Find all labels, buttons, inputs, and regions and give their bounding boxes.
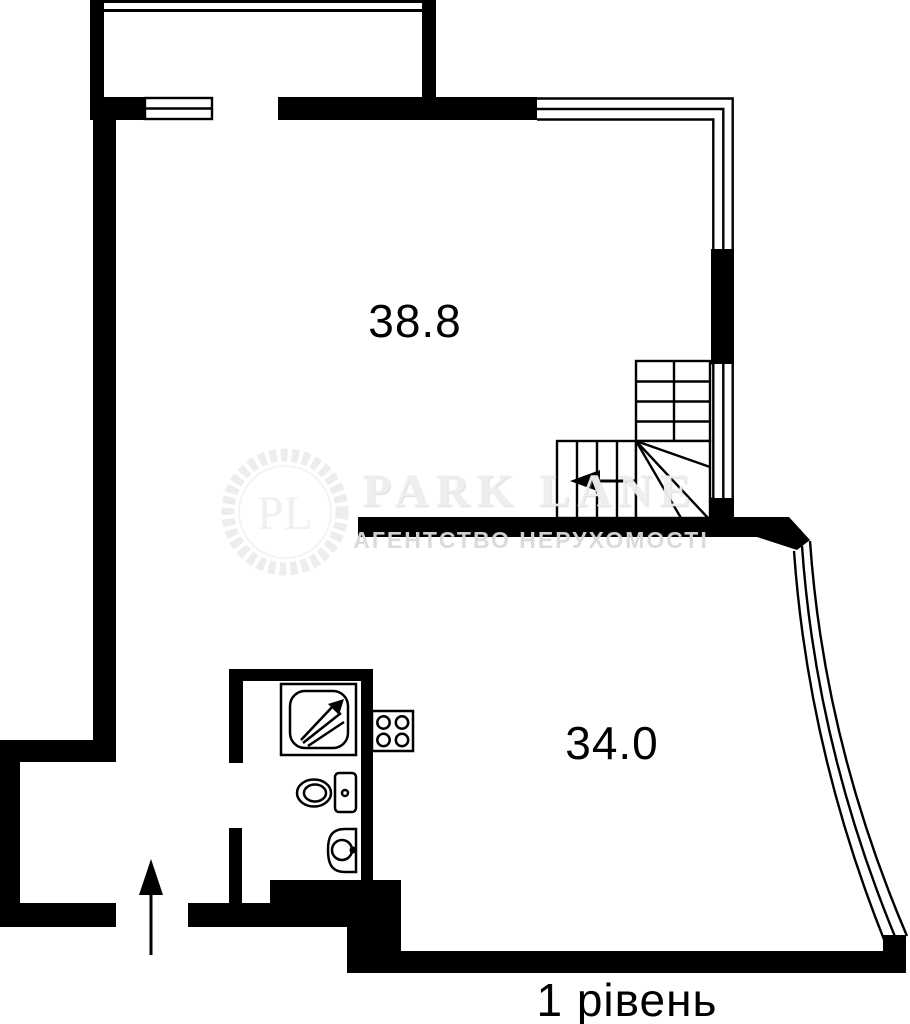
room-area-label-lower: 34.0 [542,716,682,770]
sink-icon [328,829,357,872]
bottom-wall-left [188,903,274,927]
fixtures [281,684,413,872]
toilet-icon [297,773,356,812]
bathroom-left-wall-upper [229,669,243,763]
right-wall-upper [711,249,734,365]
corner-window [537,99,733,251]
alcove-bottom-wall [0,903,116,927]
room-area-label-upper: 38.8 [345,294,485,348]
bottom-wall-main [370,951,884,973]
right-wall-lower [711,497,734,520]
bathroom-left-wall-lower [229,828,242,903]
balcony-rail-outer [90,0,436,3]
stove-icon [372,711,413,751]
top-wall-right-segment [278,97,537,120]
walls [0,97,906,973]
bathroom-south-wall [270,880,347,927]
bathroom-top-wall [229,669,373,681]
balcony-right-wall [422,2,436,98]
middle-wall [358,517,770,537]
window-top-left [145,98,212,119]
bathroom-right-wall [361,669,373,880]
middle-wall-angled-end [757,517,810,550]
right-window [712,364,734,498]
stairs [557,361,710,518]
level-label: 1 рівень [507,973,747,1024]
bottom-right-corner-block [883,935,906,973]
shower-icon [281,684,356,755]
curved-window [794,541,907,942]
balcony-rail-inner [90,9,436,12]
alcove-left-wall [0,740,20,927]
left-wall [93,97,116,740]
floor-plan-drawing [0,0,910,1024]
entrance-arrow-icon [139,859,163,955]
floor-plan: 38.8 34.0 1 рівень PL PARK LANE АГЕНТСТВ… [0,0,910,1024]
